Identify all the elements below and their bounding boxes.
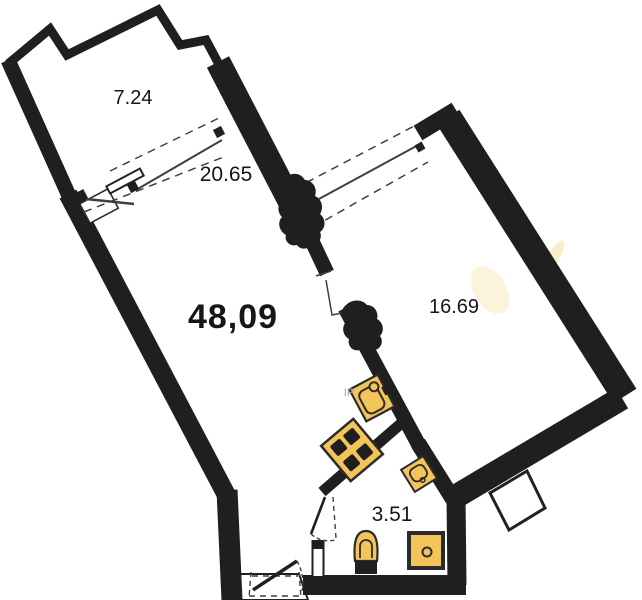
wall-left-lower (227, 490, 232, 600)
label-living-area: 20.65 (200, 163, 253, 186)
wall-bathroom-right (456, 497, 457, 585)
shower-tray (409, 533, 443, 568)
wall-slot (314, 549, 323, 576)
label-faint-mark: IP (344, 387, 354, 399)
floor-plan-svg: 7.24 20.65 48,09 16.69 3.51 IP (0, 0, 642, 600)
toilet-tank (355, 561, 377, 574)
floor-plan-page: 7.24 20.65 48,09 16.69 3.51 IP (0, 0, 642, 600)
toilet (354, 531, 377, 574)
label-bathroom-area: 3.51 (372, 503, 413, 526)
label-total-area: 48,09 (188, 298, 278, 336)
label-bedroom-area: 16.69 (429, 296, 479, 318)
label-balcony-area: 7.24 (114, 87, 153, 109)
